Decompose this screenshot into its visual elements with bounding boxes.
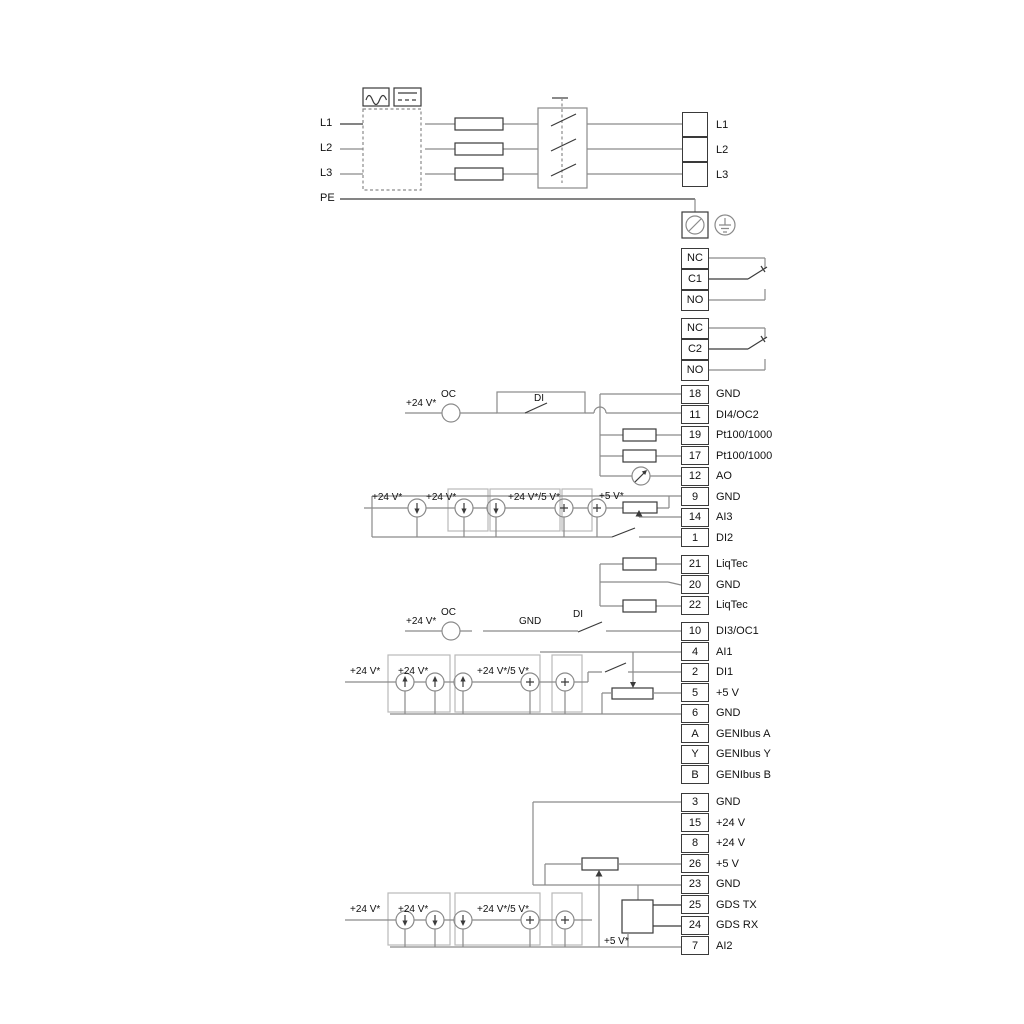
terminal-number: 5 [692, 687, 698, 699]
terminal-label: AI2 [716, 936, 733, 956]
ac-icon [363, 88, 389, 106]
terminal-number: 24 [689, 919, 701, 931]
terminal-box: 3 [681, 793, 709, 812]
resistor-icon [623, 429, 656, 441]
terminal-label: +5 V [716, 854, 739, 874]
supply-label: +24 V*/5 V* [477, 905, 529, 915]
oc2-circle-icon [442, 404, 460, 422]
mains-label-l2: L2 [320, 142, 332, 155]
mains-label-pe: PE [320, 192, 335, 205]
pe-terminal-icon [682, 212, 708, 238]
terminal-number: 7 [692, 940, 698, 952]
terminal-label: GND [716, 487, 740, 507]
block-box [682, 112, 708, 137]
terminal-label: DI2 [716, 528, 733, 548]
terminal-box: 6 [681, 704, 709, 723]
terminal-label: LiqTec [716, 595, 748, 615]
mains-input-wires [340, 124, 695, 212]
dc-icon [394, 88, 421, 106]
di2-switch-icon [612, 528, 635, 537]
earth-icon [715, 215, 735, 235]
supply-label: +24 V* [406, 399, 436, 409]
emc-filter-box [363, 109, 421, 190]
supply-label: +24 V* [406, 617, 436, 627]
relay-terminal-label: NC [687, 322, 703, 334]
terminal-box: A [681, 724, 709, 743]
io3-wires [390, 802, 681, 947]
terminal-box: 7 [681, 936, 709, 955]
terminal-number: 12 [689, 470, 701, 482]
terminal-label: GENIbus Y [716, 744, 771, 764]
supply-label: +5 V* [604, 937, 629, 947]
terminal-number: 18 [689, 388, 701, 400]
terminal-number: 4 [692, 646, 698, 658]
terminal-label: L2 [716, 140, 728, 160]
block-box: NO [681, 360, 709, 381]
supply-label: +24 V* [372, 493, 402, 503]
terminal-number: 19 [689, 429, 701, 441]
terminal-number: 22 [689, 599, 701, 611]
mains-label-l1: L1 [320, 117, 332, 130]
terminal-box: 15 [681, 813, 709, 832]
relay-terminal-label: C1 [688, 273, 702, 285]
di-label: DI [573, 610, 583, 620]
terminal-box: 17 [681, 446, 709, 465]
terminal-number: 21 [689, 558, 701, 570]
terminal-box: Y [681, 745, 709, 764]
gds-sensor-box [622, 900, 653, 933]
terminal-label: L1 [716, 115, 728, 135]
terminal-label: Pt100/1000 [716, 446, 772, 466]
terminal-label: +24 V [716, 813, 745, 833]
potentiometer-icon [623, 502, 657, 513]
terminal-number: 25 [689, 899, 701, 911]
terminal-label: GENIbus A [716, 724, 770, 744]
supply-label: +24 V*/5 V* [508, 493, 560, 503]
wiring-diagram: L1 L2 L3 PE +24 V* OC DI +24 V* +24 V* +… [0, 0, 1024, 1024]
terminal-number: 1 [692, 532, 698, 544]
terminal-number: 6 [692, 707, 698, 719]
terminal-number: 17 [689, 450, 701, 462]
terminal-label: LiqTec [716, 554, 748, 574]
terminal-label: +24 V [716, 833, 745, 853]
terminal-box: 26 [681, 854, 709, 873]
terminal-label: L3 [716, 165, 728, 185]
terminal-label: GND [716, 575, 740, 595]
terminal-number: 14 [689, 511, 701, 523]
terminal-label: +5 V [716, 683, 739, 703]
ai2-option-wires [345, 893, 592, 947]
terminal-label: GDS RX [716, 915, 758, 935]
block-box: C1 [681, 269, 709, 290]
terminal-number: 11 [689, 409, 700, 421]
liqtec-wires [600, 558, 681, 612]
terminal-label: GENIbus B [716, 765, 771, 785]
block-box: NC [681, 248, 709, 269]
block-box [682, 162, 708, 187]
terminal-box: 12 [681, 467, 709, 486]
terminal-label: Pt100/1000 [716, 425, 772, 445]
mains-label-l3: L3 [320, 167, 332, 180]
block-box: NO [681, 290, 709, 311]
terminal-box: 14 [681, 508, 709, 527]
terminal-box: 5 [681, 683, 709, 702]
relay-terminal-label: NO [687, 364, 704, 376]
oc-label: OC [441, 390, 456, 400]
wiper-arrow-icon [630, 682, 636, 688]
terminal-box: 24 [681, 916, 709, 935]
terminal-label: GDS TX [716, 895, 757, 915]
terminal-box: 25 [681, 895, 709, 914]
supply-label: +24 V* [398, 905, 428, 915]
terminal-box: 2 [681, 663, 709, 682]
terminal-box: 23 [681, 875, 709, 894]
resistor-icon [623, 558, 656, 570]
terminal-label: DI1 [716, 662, 733, 682]
di3-switch-icon [578, 622, 602, 632]
block-box: NC [681, 318, 709, 339]
resistor-icon [623, 600, 656, 612]
wiper-arrow-icon [596, 870, 603, 877]
relay2-contact-icon [709, 328, 767, 370]
relay-terminal-label: NO [687, 294, 704, 306]
terminal-label: GND [716, 384, 740, 404]
terminal-number: B [691, 769, 698, 781]
terminal-label: GND [716, 874, 740, 894]
supply-label: +5 V* [599, 492, 624, 502]
terminal-number: 3 [692, 796, 698, 808]
block-box: C2 [681, 339, 709, 360]
oc1-circle-icon [442, 622, 460, 640]
terminal-number: 15 [689, 817, 701, 829]
di-label: DI [534, 394, 544, 404]
wiring-svg [0, 0, 1024, 1024]
relay-terminal-label: C2 [688, 343, 702, 355]
terminal-number: Y [691, 748, 698, 760]
terminal-box: 11 [681, 405, 709, 424]
potentiometer-icon [612, 688, 653, 699]
oc-label: OC [441, 608, 456, 618]
terminal-box: 8 [681, 834, 709, 853]
disconnect-switch-icon [538, 98, 587, 188]
supply-label: +24 V* [398, 667, 428, 677]
terminal-label: DI3/OC1 [716, 621, 759, 641]
terminal-number: 26 [689, 858, 701, 870]
block-box [682, 137, 708, 162]
fuse-icon [455, 118, 503, 180]
supply-label: +24 V* [350, 667, 380, 677]
terminal-label: DI4/OC2 [716, 405, 759, 425]
relay-terminal-label: NC [687, 252, 703, 264]
terminal-label: AO [716, 466, 732, 486]
terminal-number: 8 [692, 837, 698, 849]
supply-label: +24 V* [350, 905, 380, 915]
terminal-box: 22 [681, 596, 709, 615]
supply-label: +24 V*/5 V* [477, 667, 529, 677]
terminal-box: 9 [681, 487, 709, 506]
ai1-option-wires [345, 652, 681, 714]
terminal-box: 20 [681, 575, 709, 594]
terminal-box: 18 [681, 385, 709, 404]
terminal-label: GND [716, 703, 740, 723]
terminal-box: 19 [681, 426, 709, 445]
terminal-number: 23 [689, 878, 701, 890]
terminal-box: B [681, 765, 709, 784]
supply-label: +24 V* [426, 493, 456, 503]
gnd-label: GND [519, 617, 541, 627]
terminal-box: 10 [681, 622, 709, 641]
terminal-box: 4 [681, 642, 709, 661]
terminal-number: A [691, 728, 698, 740]
terminal-label: AI3 [716, 507, 733, 527]
terminal-number: 20 [689, 579, 701, 591]
terminal-number: 2 [692, 666, 698, 678]
terminal-label: AI1 [716, 642, 733, 662]
terminal-box: 21 [681, 555, 709, 574]
meter-icon [632, 467, 650, 485]
terminal-number: 10 [689, 625, 701, 637]
io1-wires [405, 392, 681, 485]
terminal-label: GND [716, 792, 740, 812]
relay1-contact-icon [709, 258, 767, 300]
potentiometer-icon [582, 858, 618, 870]
oc1-wires [405, 622, 681, 640]
terminal-box: 1 [681, 528, 709, 547]
terminal-number: 9 [692, 491, 698, 503]
resistor-icon [623, 450, 656, 462]
di1-switch-icon [605, 663, 626, 672]
